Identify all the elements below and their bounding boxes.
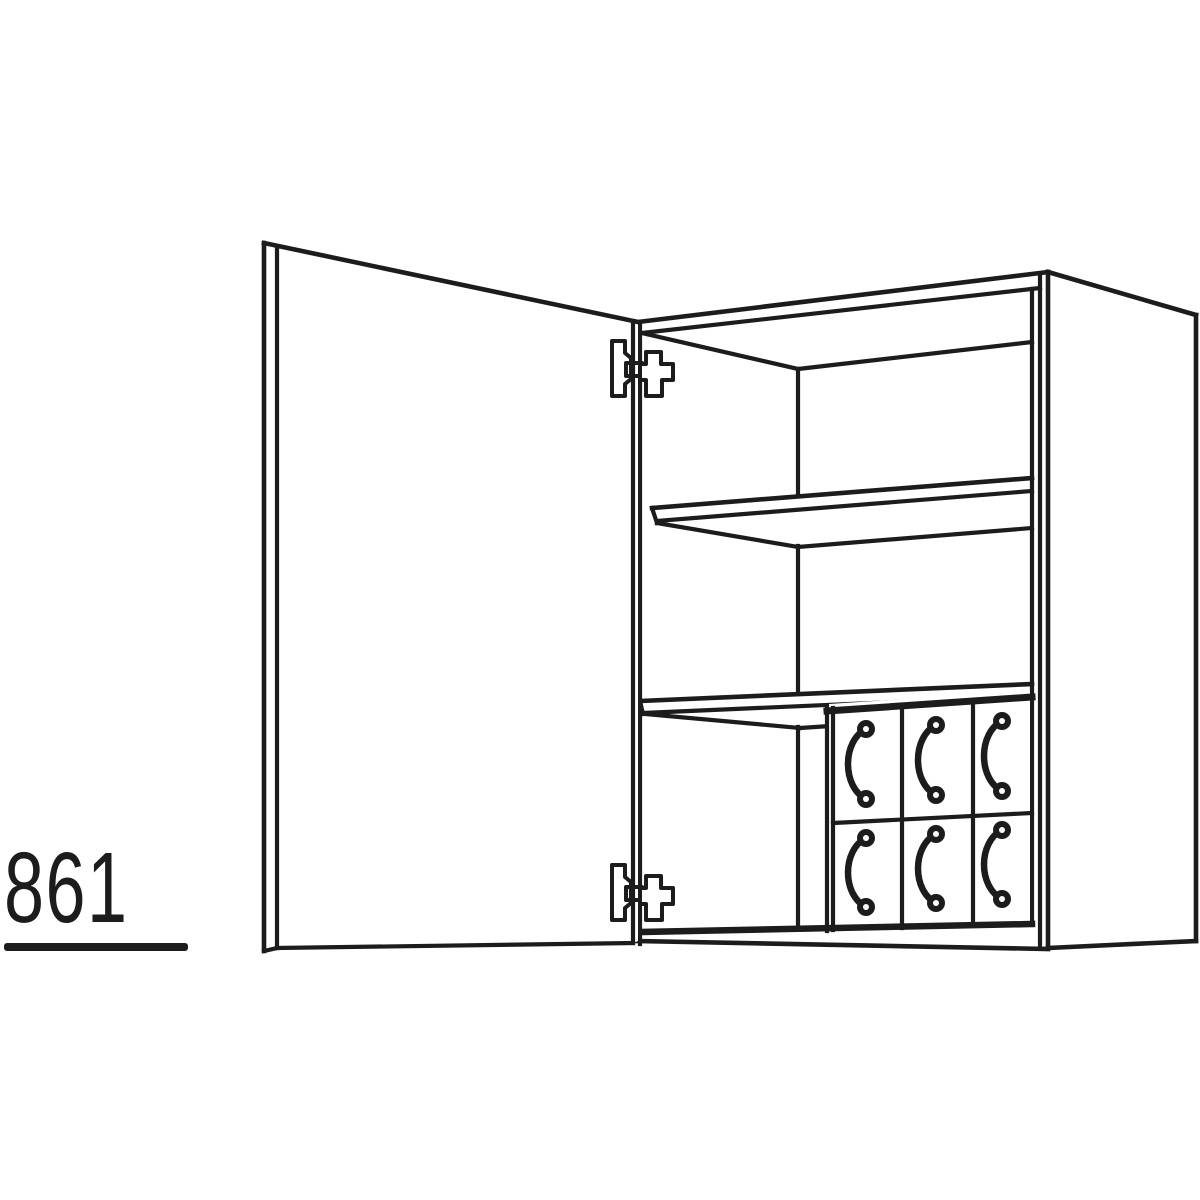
handle-knob-dot bbox=[863, 726, 869, 732]
model-label-block: 861 bbox=[4, 838, 177, 938]
handle-knob-dot bbox=[999, 718, 1005, 724]
bottom-interior-front-edge bbox=[640, 924, 1032, 932]
right-panel-top-edge bbox=[1048, 272, 1196, 315]
model-label-underline bbox=[4, 943, 188, 951]
handle-knob-dot bbox=[863, 796, 869, 802]
handle-knob-dot bbox=[999, 896, 1005, 902]
hinge-mounting-arm bbox=[640, 352, 673, 396]
right-panel-bottom-edge bbox=[1048, 941, 1196, 948]
drawing-canvas: 861 bbox=[0, 0, 1200, 1200]
hinge-mounting-arm bbox=[640, 876, 673, 920]
cabinet-bottom bbox=[637, 924, 1048, 949]
middle-shelf-front-edge bbox=[657, 491, 1032, 521]
handle-knob-dot bbox=[933, 831, 939, 837]
middle-shelf-underside-left bbox=[657, 523, 798, 547]
top-front-inner-edge bbox=[642, 288, 1040, 333]
hinge-top bbox=[612, 341, 673, 396]
handle-knob-dot bbox=[933, 792, 939, 798]
handle-knob-dot bbox=[999, 827, 1005, 833]
handle-knob-dot bbox=[999, 788, 1005, 794]
hinge-bottom bbox=[612, 865, 673, 920]
cabinet-door-open bbox=[264, 243, 638, 951]
handle-knob-dot bbox=[863, 835, 869, 841]
drawer-block bbox=[827, 691, 1032, 931]
door-face bbox=[264, 243, 638, 951]
middle-shelf bbox=[652, 478, 1032, 547]
handle-knob-dot bbox=[933, 722, 939, 728]
middle-shelf-top-edge bbox=[652, 478, 1032, 508]
handle-knob-dot bbox=[933, 900, 939, 906]
door-bottom-cap bbox=[264, 948, 277, 951]
ceiling-back-edge bbox=[798, 342, 1032, 369]
right-side-panel bbox=[1048, 272, 1196, 948]
cabinet-technical-drawing bbox=[0, 0, 1200, 1200]
lower-shelf-underside-left bbox=[645, 714, 800, 728]
model-label: 861 bbox=[4, 838, 128, 938]
top-front-outer-edge bbox=[638, 272, 1048, 322]
handle-knob-dot bbox=[863, 904, 869, 910]
middle-shelf-underside-back bbox=[798, 528, 1032, 547]
bottom-outer-front-edge bbox=[637, 941, 1048, 949]
